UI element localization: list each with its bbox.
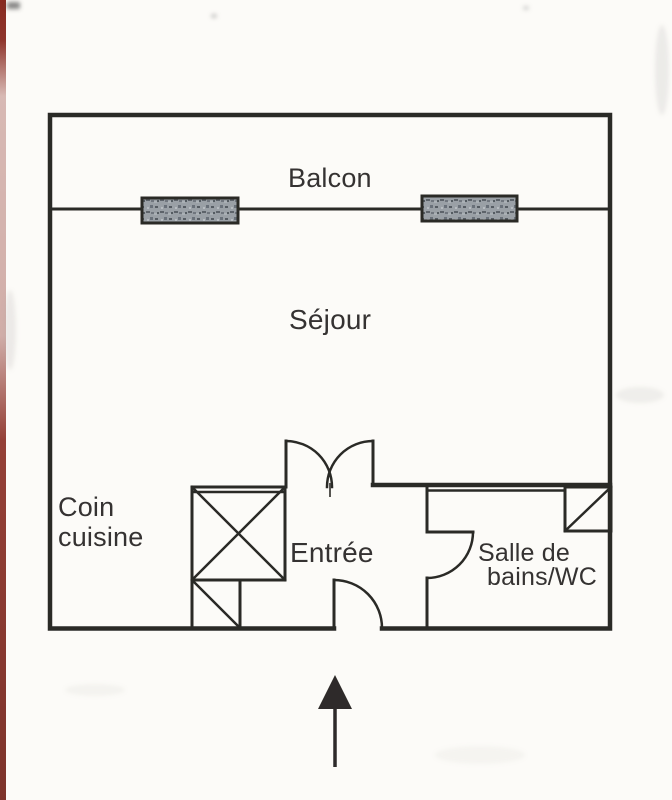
- window-right: [422, 196, 517, 221]
- scan-smudge: [4, 290, 16, 370]
- page-edge-artifact: [0, 0, 6, 800]
- scan-smudge: [211, 14, 217, 18]
- scanned-floor-plan-page: Balcon Séjour Coin cuisine Entrée Salle …: [0, 0, 672, 800]
- scan-smudge: [616, 387, 664, 403]
- floor-plan-canvas: Balcon Séjour Coin cuisine Entrée Salle …: [0, 0, 672, 800]
- scan-smudge: [655, 25, 669, 115]
- scan-smudge: [65, 684, 125, 696]
- scan-smudge: [7, 2, 20, 9]
- bathroom-label-line2: bains/WC: [487, 563, 597, 591]
- balcony-label: Balcon: [288, 163, 372, 193]
- kitchen-label-line1: Coin: [58, 492, 114, 522]
- living-room-label: Séjour: [289, 304, 371, 335]
- scan-smudge: [523, 6, 529, 10]
- window-left: [142, 198, 238, 223]
- entrance-label: Entrée: [290, 537, 374, 568]
- scan-smudge: [435, 746, 525, 764]
- kitchen-label-line2: cuisine: [58, 522, 143, 552]
